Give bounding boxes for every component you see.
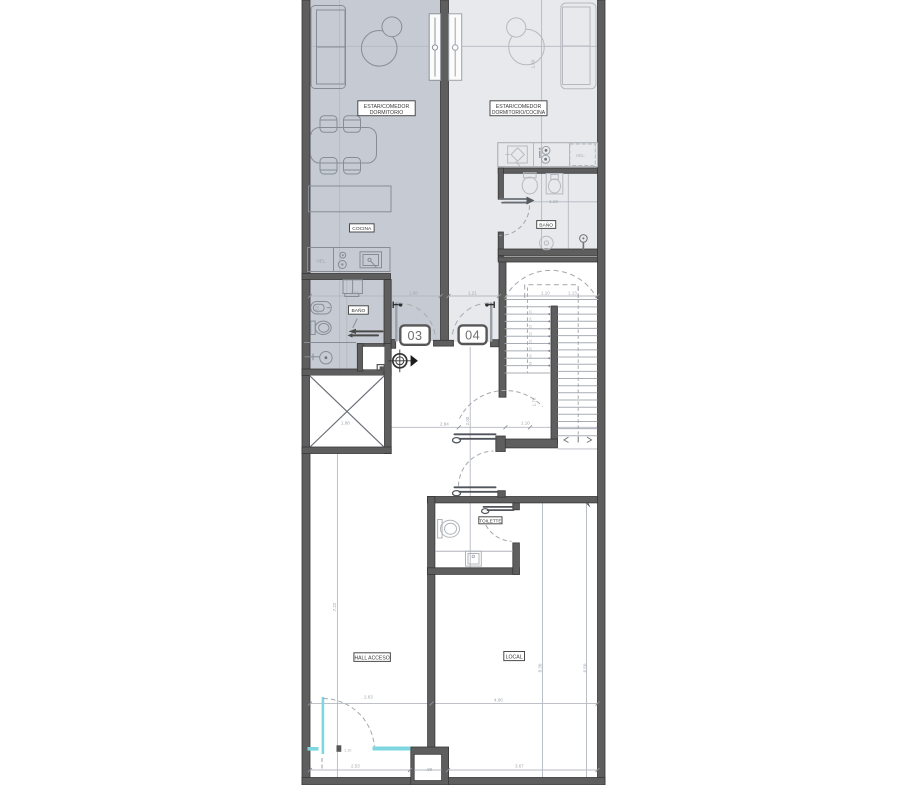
svg-text:HALL ACCESO: HALL ACCESO [354, 655, 389, 661]
svg-text:24: 24 [529, 317, 533, 321]
svg-text:1.13: 1.13 [549, 199, 558, 204]
svg-text:2.84: 2.84 [440, 421, 449, 426]
svg-text:.89: .89 [426, 767, 433, 772]
svg-text:2.05: 2.05 [465, 416, 470, 425]
svg-text:22: 22 [529, 332, 533, 336]
svg-text:25: 25 [529, 310, 533, 314]
svg-text:1.88: 1.88 [341, 421, 350, 426]
svg-text:19: 19 [529, 354, 533, 358]
svg-text:21: 21 [529, 339, 533, 343]
svg-text:1.52: 1.52 [315, 305, 320, 314]
svg-text:HEL.: HEL. [317, 259, 327, 264]
svg-text:1.78: 1.78 [532, 397, 537, 406]
svg-text:DORMITORIO/COCINA: DORMITORIO/COCINA [492, 110, 546, 116]
svg-text:3.67: 3.67 [515, 764, 524, 769]
svg-text:18: 18 [529, 362, 533, 366]
svg-text:BAÑO: BAÑO [539, 222, 553, 229]
svg-text:04: 04 [465, 329, 480, 343]
svg-text:1.10: 1.10 [344, 749, 351, 753]
svg-text:7.22: 7.22 [332, 602, 337, 611]
svg-text:1.13: 1.13 [568, 291, 577, 296]
svg-text:8.30: 8.30 [538, 663, 543, 672]
svg-text:03: 03 [407, 329, 422, 343]
svg-text:LOCAL: LOCAL [506, 654, 523, 660]
svg-text:1.50: 1.50 [531, 59, 536, 68]
svg-text:TOILETTE: TOILETTE [479, 518, 501, 523]
svg-text:1.98: 1.98 [350, 291, 359, 296]
svg-text:4.06: 4.06 [494, 698, 503, 703]
svg-text:2.53: 2.53 [351, 764, 360, 769]
svg-text:1.98: 1.98 [409, 291, 418, 296]
svg-text:1.10: 1.10 [541, 291, 550, 296]
svg-text:20: 20 [529, 347, 533, 351]
svg-text:HEL.: HEL. [576, 153, 586, 158]
svg-text:23: 23 [529, 325, 533, 329]
svg-text:DORMITORIO: DORMITORIO [370, 110, 404, 116]
svg-text:1.21: 1.21 [468, 291, 477, 296]
svg-text:6.50: 6.50 [583, 663, 588, 672]
svg-text:2.63: 2.63 [364, 695, 373, 700]
svg-text:COCINA: COCINA [352, 226, 372, 232]
svg-text:1.10: 1.10 [521, 420, 530, 425]
svg-text:BAÑO: BAÑO [351, 307, 365, 314]
